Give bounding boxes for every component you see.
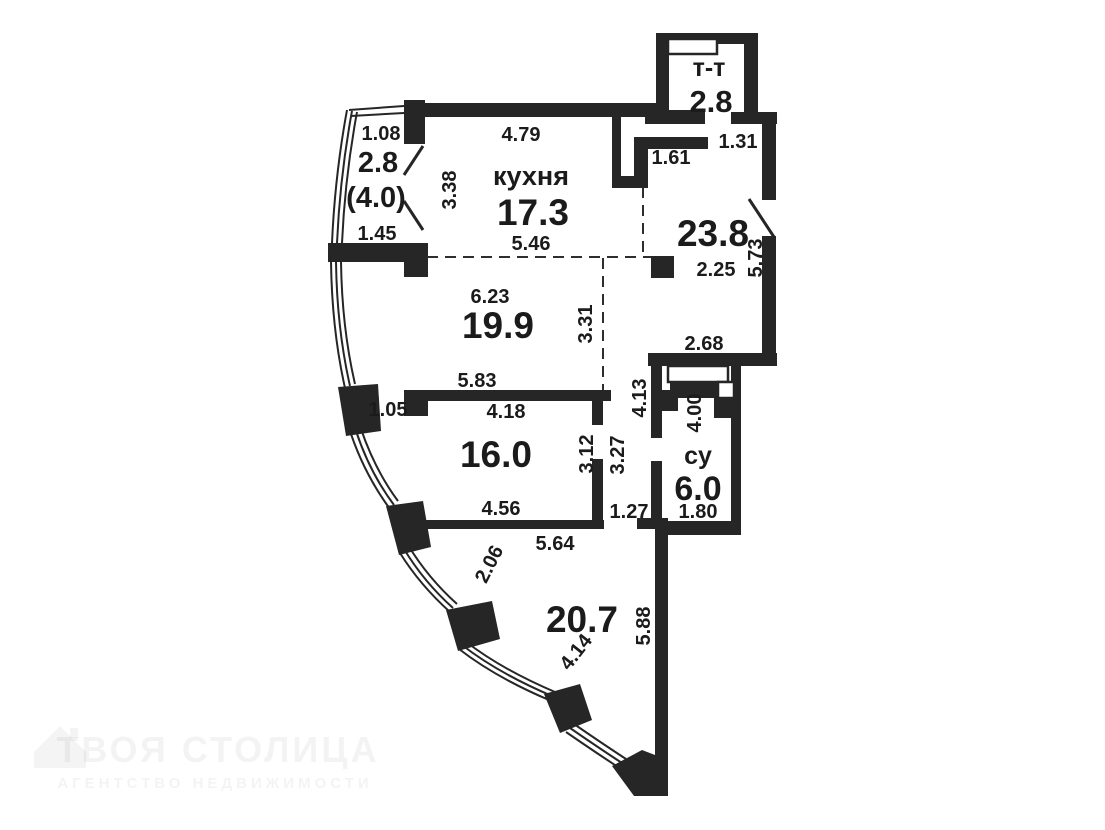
dim-hall-bottom: 2.68 xyxy=(685,333,724,355)
balcony-door-leaf xyxy=(404,146,423,175)
glazing-line xyxy=(337,111,352,243)
glazing-line xyxy=(349,106,404,110)
dim-corridor-inner: 3.27 xyxy=(607,436,629,475)
wall-segment xyxy=(612,176,648,188)
dim-bedroom-top: 4.18 xyxy=(487,401,526,423)
room-area-balcony-alt: (4.0) xyxy=(346,182,406,214)
duct-box xyxy=(668,39,717,54)
glazing-line xyxy=(332,110,347,243)
glazing-line xyxy=(459,649,549,700)
dim-bedroom-top-small: 1.05 xyxy=(369,399,408,421)
glazing-line xyxy=(361,429,398,501)
dim-bath-bottom: 1.80 xyxy=(679,501,718,523)
wall-segment xyxy=(651,461,662,523)
dim-bigroom-right: 5.88 xyxy=(633,607,655,646)
room-name-kitchen: кухня xyxy=(493,161,569,191)
dim-balcony-bottom: 1.45 xyxy=(358,223,397,245)
glazing-line xyxy=(404,549,453,608)
dim-bigroom-curve-upper: 2.06 xyxy=(471,542,508,587)
wall-segment xyxy=(404,390,428,416)
duct-box xyxy=(668,366,728,382)
dim-bedroom-bottom: 4.56 xyxy=(482,498,521,520)
glazing-line xyxy=(462,645,552,696)
facade-pier xyxy=(446,601,500,651)
dim-vent-left: 1.61 xyxy=(652,147,691,169)
room-name-vent: т-т xyxy=(693,54,726,82)
glazing-line xyxy=(336,262,350,386)
glazing-line xyxy=(351,113,404,116)
dim-kitchen-top: 4.79 xyxy=(502,124,541,146)
glazing-line xyxy=(570,728,622,763)
glazing-line xyxy=(331,262,345,388)
watermark: ТВОЯ СТОЛИЦА АГЕНТСТВО НЕДВИЖИМОСТИ xyxy=(34,726,380,792)
facade-pier xyxy=(612,750,668,796)
watermark-title: ТВОЯ СТОЛИЦА xyxy=(56,729,379,770)
dim-corridor-door: 1.27 xyxy=(610,501,649,523)
watermark-subtitle: АГЕНТСТВО НЕДВИЖИМОСТИ xyxy=(57,775,372,792)
dim-hall-width: 2.25 xyxy=(697,259,736,281)
dim-living-right: 3.31 xyxy=(575,305,597,344)
room-area-living: 19.9 xyxy=(462,305,534,346)
glazing-line xyxy=(465,641,555,692)
glazing-line xyxy=(356,431,394,505)
dim-vent-right: 1.31 xyxy=(719,131,758,153)
room-area-kitchen: 17.3 xyxy=(497,192,569,233)
wall-segment xyxy=(404,390,611,401)
dim-corridor-outer: 4.13 xyxy=(629,379,651,418)
wall-segment xyxy=(404,100,425,144)
room-area-balcony: 2.8 xyxy=(358,147,398,179)
dim-bath-left: 4.00 xyxy=(684,394,706,433)
glazing-line xyxy=(574,724,626,759)
dim-kitchen-left: 3.38 xyxy=(439,171,461,210)
wall-segment xyxy=(655,521,668,796)
floor-plan-canvas: ТВОЯ СТОЛИЦА АГЕНТСТВО НЕДВИЖИМОСТИ xyxy=(0,0,1105,830)
entry-door-leaf xyxy=(749,199,774,237)
dim-living-bottom: 5.83 xyxy=(458,370,497,392)
wall-segment xyxy=(420,520,604,529)
dim-balcony-top: 1.08 xyxy=(362,123,401,145)
dim-bedroom-right: 3.12 xyxy=(576,435,598,474)
column xyxy=(651,256,674,278)
glazing-line xyxy=(400,553,450,612)
dim-bigroom-top: 5.64 xyxy=(536,533,576,555)
dim-kitchen-bottom: 5.46 xyxy=(512,233,551,255)
glazing-line xyxy=(351,434,390,509)
wall-segment xyxy=(744,33,758,123)
room-area-hall: 23.8 xyxy=(677,213,749,254)
floor-plan-drawing: ТВОЯ СТОЛИЦА АГЕНТСТВО НЕДВИЖИМОСТИ xyxy=(0,0,1105,830)
room-name-bath: су xyxy=(684,442,712,470)
room-area-bedroom: 16.0 xyxy=(460,434,532,475)
wall-segment xyxy=(592,390,603,425)
wall-segment xyxy=(404,243,428,277)
room-area-vent: 2.8 xyxy=(689,84,732,119)
wall-segment xyxy=(762,112,776,200)
wall-segment xyxy=(424,103,660,117)
duct-box xyxy=(718,382,734,398)
glazing-line xyxy=(341,262,355,384)
dim-hall-right: 5.73 xyxy=(745,239,767,278)
balcony-door-leaf xyxy=(404,201,423,230)
